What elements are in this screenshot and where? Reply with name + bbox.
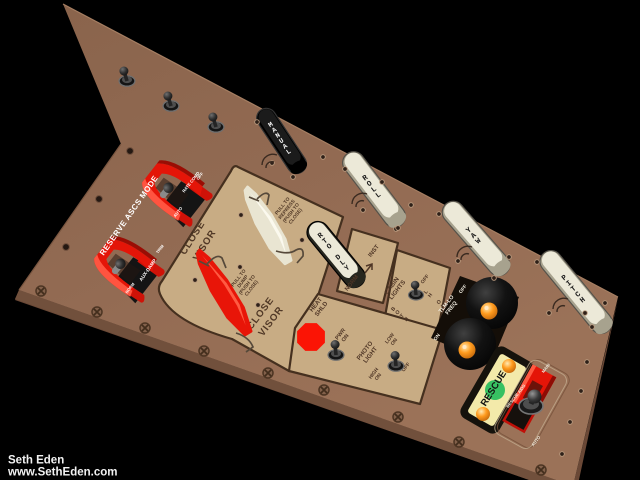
svg-text:Seth Eden: Seth Eden	[8, 455, 64, 467]
svg-text:www.SethEden.com: www.SethEden.com	[7, 467, 117, 479]
